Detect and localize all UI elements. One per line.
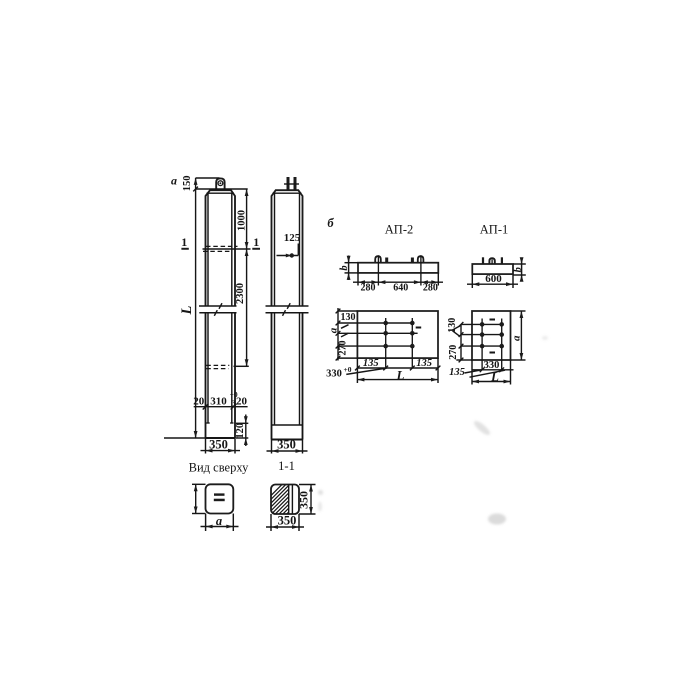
- svg-text:120: 120: [235, 423, 246, 439]
- svg-text:a: a: [216, 514, 222, 528]
- svg-text:150: 150: [182, 176, 193, 192]
- svg-text:130: 130: [341, 312, 356, 323]
- svg-text:640: 640: [393, 283, 408, 294]
- svg-text:Вид сверху: Вид сверху: [189, 461, 249, 475]
- svg-text:2300: 2300: [235, 283, 246, 304]
- svg-text:280: 280: [361, 283, 376, 294]
- svg-text:АП-1: АП-1: [480, 223, 508, 237]
- svg-text:350: 350: [297, 491, 311, 509]
- svg-text:a: a: [327, 327, 339, 333]
- svg-text:20: 20: [193, 395, 205, 407]
- svg-text:1000: 1000: [237, 210, 248, 231]
- svg-text:600: 600: [485, 273, 502, 285]
- svg-text:135: 135: [416, 358, 432, 369]
- svg-text:310: 310: [210, 395, 227, 407]
- svg-text:350: 350: [209, 437, 228, 451]
- svg-text:135: 135: [363, 358, 379, 369]
- svg-text:b: b: [339, 265, 350, 270]
- svg-text:L: L: [396, 368, 405, 383]
- svg-text:330: 330: [326, 369, 342, 380]
- svg-text:+0: +0: [344, 365, 352, 374]
- svg-text:270: 270: [448, 345, 459, 360]
- svg-text:a: a: [511, 335, 523, 341]
- svg-text:280: 280: [423, 283, 438, 294]
- svg-text:b: b: [513, 267, 524, 272]
- svg-text:1: 1: [181, 235, 187, 249]
- svg-text:б: б: [327, 216, 334, 230]
- svg-text:1-1: 1-1: [278, 459, 295, 473]
- svg-text:125: 125: [284, 232, 301, 244]
- svg-text:135: 135: [449, 367, 465, 378]
- svg-text:20: 20: [236, 395, 248, 407]
- svg-text:350: 350: [278, 514, 297, 528]
- svg-text:L: L: [490, 369, 499, 384]
- svg-text:270: 270: [338, 341, 349, 356]
- svg-text:350: 350: [277, 438, 296, 452]
- svg-text:1: 1: [253, 235, 259, 249]
- svg-text:АП-2: АП-2: [385, 223, 413, 237]
- svg-text:L: L: [179, 305, 195, 315]
- svg-text:130: 130: [447, 318, 458, 333]
- svg-text:a: a: [171, 174, 177, 188]
